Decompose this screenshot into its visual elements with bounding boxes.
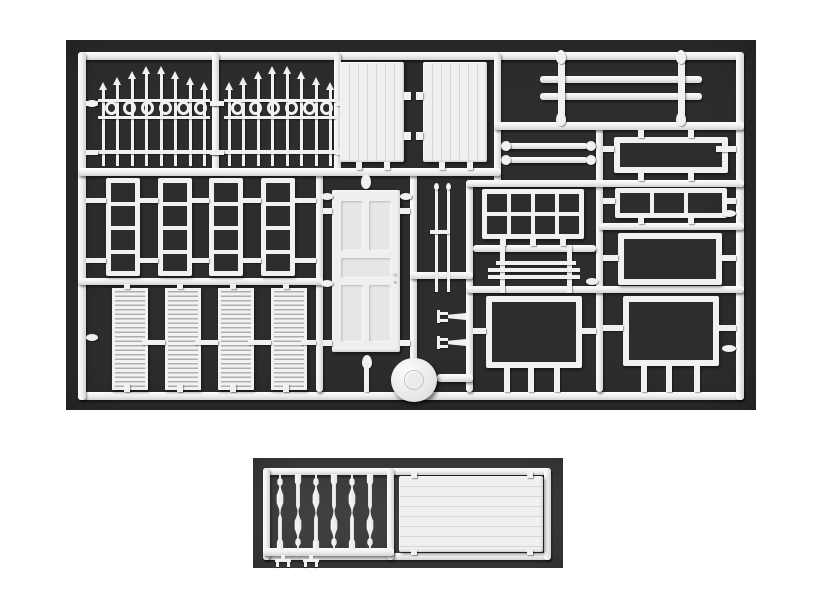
fence-rail: [224, 116, 336, 119]
main-sprue-photo: [66, 40, 756, 410]
turned-baluster: [346, 474, 358, 550]
window-mullion: [487, 212, 579, 216]
sprue-tab: [666, 366, 672, 392]
window-mullion: [266, 250, 290, 254]
sprue-tab: [230, 384, 236, 392]
turned-baluster: [310, 474, 322, 550]
window-mullion: [266, 226, 290, 230]
fence-ring: [303, 101, 316, 115]
thin-post-rod: [435, 188, 438, 292]
window-mullion: [163, 202, 187, 206]
t-foot: [303, 555, 319, 567]
sprue-tab: [504, 368, 510, 392]
bracket-pin: [440, 345, 448, 348]
louvred-shutter: [165, 288, 201, 390]
gate-rail: [496, 261, 576, 265]
sprue-tab: [212, 150, 224, 155]
sprue-runner: [596, 125, 603, 392]
fence-ring: [159, 101, 172, 115]
sprue-runner: [410, 272, 473, 279]
sprue-tab: [411, 472, 417, 478]
fence-ring: [105, 101, 118, 115]
hinge-tab: [416, 92, 423, 100]
sprue-tab: [473, 328, 486, 334]
sprue-tab: [248, 340, 271, 345]
sprue-tab: [86, 198, 106, 203]
fence-ring: [285, 101, 298, 115]
sprue-tab: [528, 368, 534, 392]
rod-crossbar: [430, 230, 450, 234]
bracket-pin: [440, 319, 448, 322]
sprue-tab: [439, 162, 445, 170]
sprue-tab: [142, 340, 165, 345]
sprue-tab: [688, 172, 694, 181]
thin-post-rod: [447, 188, 450, 292]
mould-disc-mark: [404, 370, 424, 390]
small-sprue-photo: [253, 458, 563, 568]
window-mullion: [266, 202, 290, 206]
sprue-nub: [86, 334, 98, 341]
door-panel: [341, 258, 391, 278]
sash-window: [106, 178, 140, 276]
sprue-tab: [243, 258, 261, 263]
planked-door-panel: [340, 62, 404, 162]
hinge-tab: [404, 132, 411, 140]
sprue-tab: [86, 150, 98, 155]
window-mullion: [214, 202, 238, 206]
turned-baluster: [328, 474, 340, 550]
hinge-tab: [404, 92, 411, 100]
turned-baluster: [274, 474, 286, 550]
window-frame-large: [486, 296, 582, 368]
sprue-tab: [140, 258, 158, 263]
mould-disc: [391, 358, 437, 402]
fence-ring: [141, 101, 154, 115]
sprue-tab: [400, 340, 410, 346]
turned-baluster: [292, 474, 304, 550]
short-rail: [508, 143, 588, 149]
sprue-tab: [230, 284, 236, 289]
sprue-runner: [78, 52, 86, 400]
window-mullion: [111, 226, 135, 230]
eight-pane-window: [482, 189, 584, 239]
sash-window: [261, 178, 295, 276]
sprue-tab: [195, 340, 218, 345]
bracket-pin: [440, 312, 448, 315]
sprue-tab: [603, 255, 618, 261]
sprue-tab: [212, 101, 224, 106]
louvred-shutter: [271, 288, 307, 390]
window-mullion: [214, 226, 238, 230]
sprue-nub: [586, 278, 598, 285]
fence-ring: [231, 101, 244, 115]
door-panel: [341, 285, 363, 342]
t-foot-leg: [315, 562, 318, 567]
wall-bracket: [437, 310, 466, 324]
bracket-gate: [448, 339, 466, 346]
sprue-runner: [466, 180, 744, 187]
post-finial: [676, 50, 686, 64]
rail-knob: [586, 141, 596, 151]
fence-section: [98, 74, 210, 166]
door-keyhole: [394, 281, 397, 284]
turned-baluster: [364, 474, 376, 550]
sprue-tab: [688, 130, 694, 138]
door-panel: [341, 201, 363, 251]
sprue-nub: [321, 280, 333, 287]
door-panel: [369, 285, 391, 342]
planked-wall-panel: [399, 476, 543, 552]
sprue-tab: [177, 384, 183, 392]
sprue-tab: [467, 162, 473, 170]
sprue-tab: [727, 198, 736, 204]
sprue-tab: [124, 384, 130, 392]
sprue-tab: [641, 366, 647, 392]
sprue-tab: [364, 368, 369, 392]
fence-ring: [123, 101, 136, 115]
sprue-tab: [356, 162, 362, 170]
wall-bracket: [437, 336, 466, 350]
sprue-runner: [263, 468, 551, 475]
sprue-tab: [603, 198, 615, 204]
sprue-tab: [638, 172, 644, 181]
louvred-shutter: [112, 288, 148, 390]
t-foot: [275, 555, 291, 567]
sprue-tab: [86, 258, 106, 263]
sprue-tab: [719, 325, 736, 331]
sprue-tab: [638, 130, 644, 138]
sprue-tab: [582, 328, 596, 334]
sprue-tab: [283, 284, 289, 289]
sprue-tab: [295, 258, 316, 263]
sprue-tab: [384, 162, 390, 170]
sprue-runner: [494, 52, 501, 185]
sprue-tab: [554, 368, 560, 392]
sprue-tab: [527, 550, 533, 555]
rail-knob: [501, 141, 511, 151]
post-finial: [556, 50, 566, 64]
post-finial: [556, 112, 566, 126]
fence-rail: [98, 116, 210, 119]
gate-rail: [488, 268, 580, 272]
sprue-runner: [410, 170, 417, 362]
louvred-shutter: [218, 288, 254, 390]
window-mullion: [214, 250, 238, 254]
sprue-tab: [323, 208, 332, 214]
sprue-runner: [387, 468, 394, 560]
sash-window: [158, 178, 192, 276]
gate-rail: [488, 275, 580, 279]
fence-ring: [177, 101, 190, 115]
window-mullion: [684, 193, 688, 213]
sprue-tab: [411, 550, 417, 555]
door-panel: [369, 201, 391, 251]
rail-knob: [501, 155, 511, 165]
door-knob: [393, 272, 398, 277]
sprue-tab: [323, 340, 332, 346]
sprue-tab: [527, 472, 533, 478]
door-top-finial: [361, 174, 371, 189]
fence-ring: [320, 101, 333, 115]
sprue-tab: [301, 340, 316, 345]
window-mullion: [163, 226, 187, 230]
sprue-tab: [283, 384, 289, 392]
sprue-tab: [243, 198, 261, 203]
rod-tip: [434, 183, 439, 190]
sprue-runner: [263, 468, 270, 560]
sash-window: [209, 178, 243, 276]
door-bottom-finial: [362, 355, 372, 369]
bracket-pin: [440, 338, 448, 341]
sprue-tab: [177, 284, 183, 289]
sprue-tab: [694, 366, 700, 392]
sprue-nub: [86, 100, 98, 107]
window-mullion: [111, 250, 135, 254]
handrail-post: [558, 60, 565, 118]
sprue-tab: [295, 198, 316, 203]
handrail-post: [678, 60, 685, 118]
hinge-tab: [416, 132, 423, 140]
sprue-tab: [400, 208, 410, 214]
triple-rail-gate: [488, 245, 580, 295]
window-mullion: [163, 250, 187, 254]
sprue-tab: [722, 255, 736, 261]
sprue-runner: [494, 122, 744, 130]
sprue-tab: [192, 198, 209, 203]
fence-ring: [267, 101, 280, 115]
sprue-runner: [437, 374, 473, 382]
short-rail: [508, 157, 588, 163]
three-pane-window-strip: [615, 188, 727, 218]
planked-door-panel: [423, 62, 487, 162]
sprue-nub: [722, 210, 736, 217]
fence-ring: [249, 101, 262, 115]
bracket-gate: [448, 313, 466, 320]
sprue-runner: [212, 52, 219, 174]
t-foot-leg: [276, 562, 279, 567]
sprue-tab: [124, 284, 130, 289]
sprue-runner: [599, 223, 744, 230]
sprue-runner: [544, 468, 551, 560]
four-panel-door: [332, 190, 400, 352]
sprue-tab: [192, 258, 209, 263]
fence-section: [224, 74, 336, 166]
rail-knob: [586, 155, 596, 165]
fence-ring: [194, 101, 207, 115]
sprue-nub: [400, 193, 412, 200]
window-mullion: [650, 193, 654, 213]
sprue-nub: [321, 193, 333, 200]
t-foot-leg: [304, 562, 307, 567]
fence-rail: [224, 150, 336, 154]
sprue-tab: [140, 198, 158, 203]
t-foot-leg: [287, 562, 290, 567]
sprue-tab: [638, 218, 644, 224]
fence-rail: [98, 150, 210, 154]
sprue-tab: [603, 325, 623, 331]
rod-tip: [446, 183, 451, 190]
window-mullion: [111, 202, 135, 206]
sprue-runner: [78, 168, 501, 176]
sprue-tab: [716, 146, 736, 152]
sprue-nub: [722, 345, 736, 352]
window-frame-small: [614, 137, 728, 173]
sprue-tab: [603, 146, 614, 152]
sprue-runner: [78, 52, 744, 60]
post-finial: [676, 112, 686, 126]
window-frame-large: [623, 296, 719, 366]
window-frame-medium: [618, 233, 722, 285]
page: [0, 0, 820, 615]
sprue-tab: [688, 218, 694, 224]
